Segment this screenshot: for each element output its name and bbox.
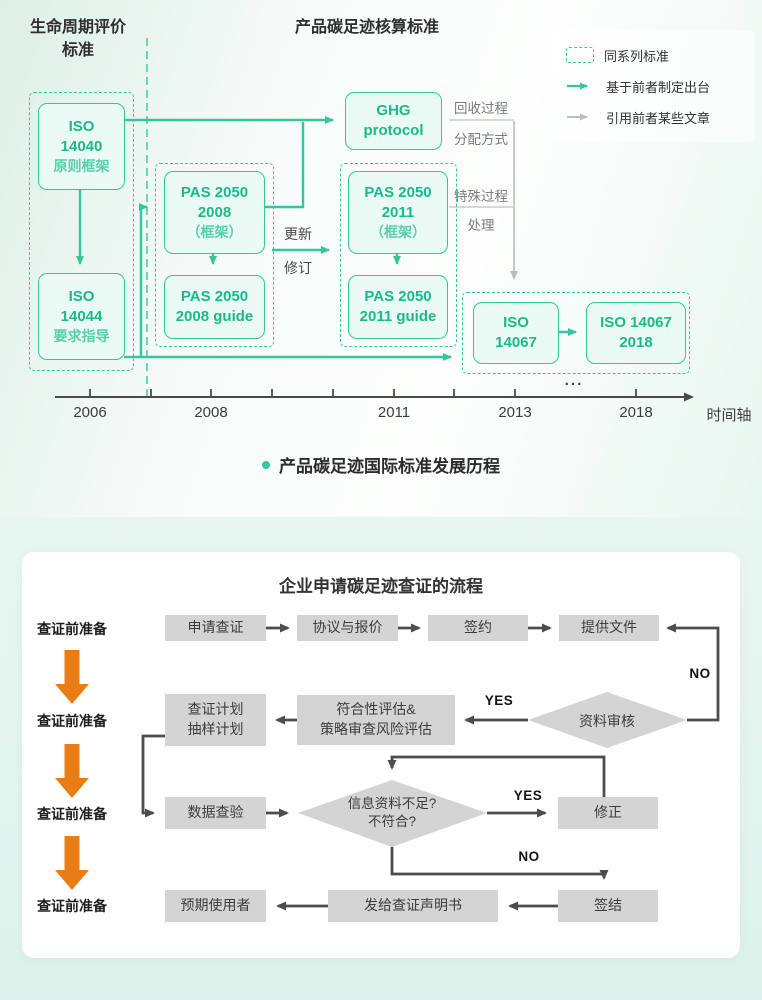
flowchart-title: 企业申请碳足迹查证的流程 [22,572,740,597]
step-sign-off: 签结 [558,890,658,922]
node-text: 2018 [619,333,652,353]
branch-label-no-1: NO [678,666,722,681]
node-iso-14044: ISO 14044 要求指导 [38,273,125,360]
node-pas2050-2008-guide: PAS 2050 2008 guide [164,275,265,339]
timeline-year-2011: 2011 [364,404,424,421]
timeline-axis-label: 时间轴 [697,404,761,425]
step-provide-documents: 提供文件 [559,615,659,641]
node-text: 2011 guide [360,307,437,327]
legend-label: 基于前者制定出台 [606,77,710,96]
bullet-dot-icon [262,461,270,469]
timeline-year-2013: 2013 [485,404,545,421]
node-text: ISO [503,313,529,333]
phase-label-4: 查证前准备 [22,896,122,916]
decision-review-label: 资料审核 [552,712,662,730]
node-text: 14040 [61,137,103,157]
decision-text: 不符合? [322,813,462,831]
node-text: ISO [69,117,95,137]
node-pas2050-2011: PAS 2050 2011 （框架） [348,171,448,254]
timeline-ellipsis: ... [558,372,590,389]
gray-arrow-icon [566,112,596,122]
dashed-box-swatch-icon [566,47,594,63]
step-sign-contract: 签约 [428,615,528,641]
node-text: protocol [364,121,424,141]
step-text: 查证计划 [188,700,244,720]
step-issue-statement: 发给查证声明书 [328,890,498,922]
step-text: 符合性评估& [336,700,415,720]
node-ghg-protocol: GHG protocol [345,92,442,150]
node-text: 14044 [61,307,103,327]
node-text: ISO 14067 [600,313,672,333]
process-label-allocation: 分配方式 [445,128,517,148]
left-title-line2: 标准 [18,39,138,62]
branch-label-yes-1: YES [477,693,521,708]
infographic: 生命周期评价 标准 产品碳足迹核算标准 同系列标准 基于前者制定出台 引用前者某… [0,0,762,1000]
node-text: （框架） [370,223,426,241]
edge-plan-to-datacheck [143,736,165,813]
node-iso-14067: ISO 14067 [473,302,559,364]
node-text: PAS 2050 [181,183,248,203]
step-intended-user: 预期使用者 [165,890,266,922]
step-text: 抽样计划 [188,720,244,740]
decision-text: 信息资料不足? [322,795,462,813]
legend-item-based-on: 基于前者制定出台 [566,76,755,96]
node-iso-14067-2018: ISO 14067 2018 [586,302,686,364]
process-label-treatment: 处理 [445,214,517,234]
step-text: 策略审查风险评估 [320,720,432,740]
node-text: PAS 2050 [364,183,431,203]
main-section-title: 产品碳足迹核算标准 [247,16,487,39]
node-text: 14067 [495,333,537,353]
edge-label-revise: 修订 [276,258,320,278]
node-text: ISO [69,287,95,307]
step-fix: 修正 [558,797,658,829]
node-text: 要求指导 [54,327,110,345]
timeline-year-2018: 2018 [606,404,666,421]
node-text: PAS 2050 [364,287,431,307]
step-apply-verification: 申请查证 [165,615,266,641]
node-text: （框架） [187,223,243,241]
legend-label: 同系列标准 [604,46,669,65]
step-agreement-quote: 协议与报价 [297,615,398,641]
step-data-check: 数据查验 [165,797,266,829]
left-title-line1: 生命周期评价 [18,16,138,39]
phase-label-1: 查证前准备 [22,619,122,639]
legend-label: 引用前者某些文章 [606,108,710,127]
connector-iso14044-to-pas2008 [141,207,147,357]
process-label-special: 特殊过程 [445,185,517,205]
green-arrow-icon [566,81,596,91]
node-text: GHG [376,101,410,121]
legend-item-cites: 引用前者某些文章 [566,107,755,127]
process-label-recycle: 回收过程 [445,97,517,117]
phase-label-2: 查证前准备 [22,711,122,731]
timeline-year-2006: 2006 [60,404,120,421]
phase-arrow-down-3 [55,836,89,890]
node-iso-14040: ISO 14040 原则框架 [38,103,125,190]
node-text: 2011 [382,203,415,223]
edge-label-update: 更新 [276,224,320,244]
decision-insufficient-label: 信息资料不足? 不符合? [322,795,462,830]
legend-item-series: 同系列标准 [566,45,755,65]
timeline-ticks [90,389,636,397]
node-text: 2008 guide [176,307,254,327]
edge-fix-loop-to-decision [392,757,604,797]
phase-arrow-down-2 [55,744,89,798]
step-verification-plan: 查证计划 抽样计划 [165,694,266,746]
step-conformity-assessment: 符合性评估& 策略审查风险评估 [297,695,455,745]
phase-label-3: 查证前准备 [22,804,122,824]
phase-arrow-down-1 [55,650,89,704]
branch-label-no-2: NO [507,849,551,864]
left-section-title: 生命周期评价 标准 [18,16,138,62]
node-text: PAS 2050 [181,287,248,307]
branch-label-yes-2: YES [506,788,550,803]
caption-text: 产品碳足迹国际标准发展历程 [279,452,500,477]
edge-decision-no-to-signoff [392,847,604,878]
legend: 同系列标准 基于前者制定出台 引用前者某些文章 [553,30,755,142]
top-caption: 产品碳足迹国际标准发展历程 [0,452,762,477]
node-pas2050-2011-guide: PAS 2050 2011 guide [348,275,448,339]
node-pas2050-2008: PAS 2050 2008 （框架） [164,171,265,254]
timeline-year-2008: 2008 [181,404,241,421]
node-text: 2008 [198,203,231,223]
node-text: 原则框架 [54,157,110,175]
